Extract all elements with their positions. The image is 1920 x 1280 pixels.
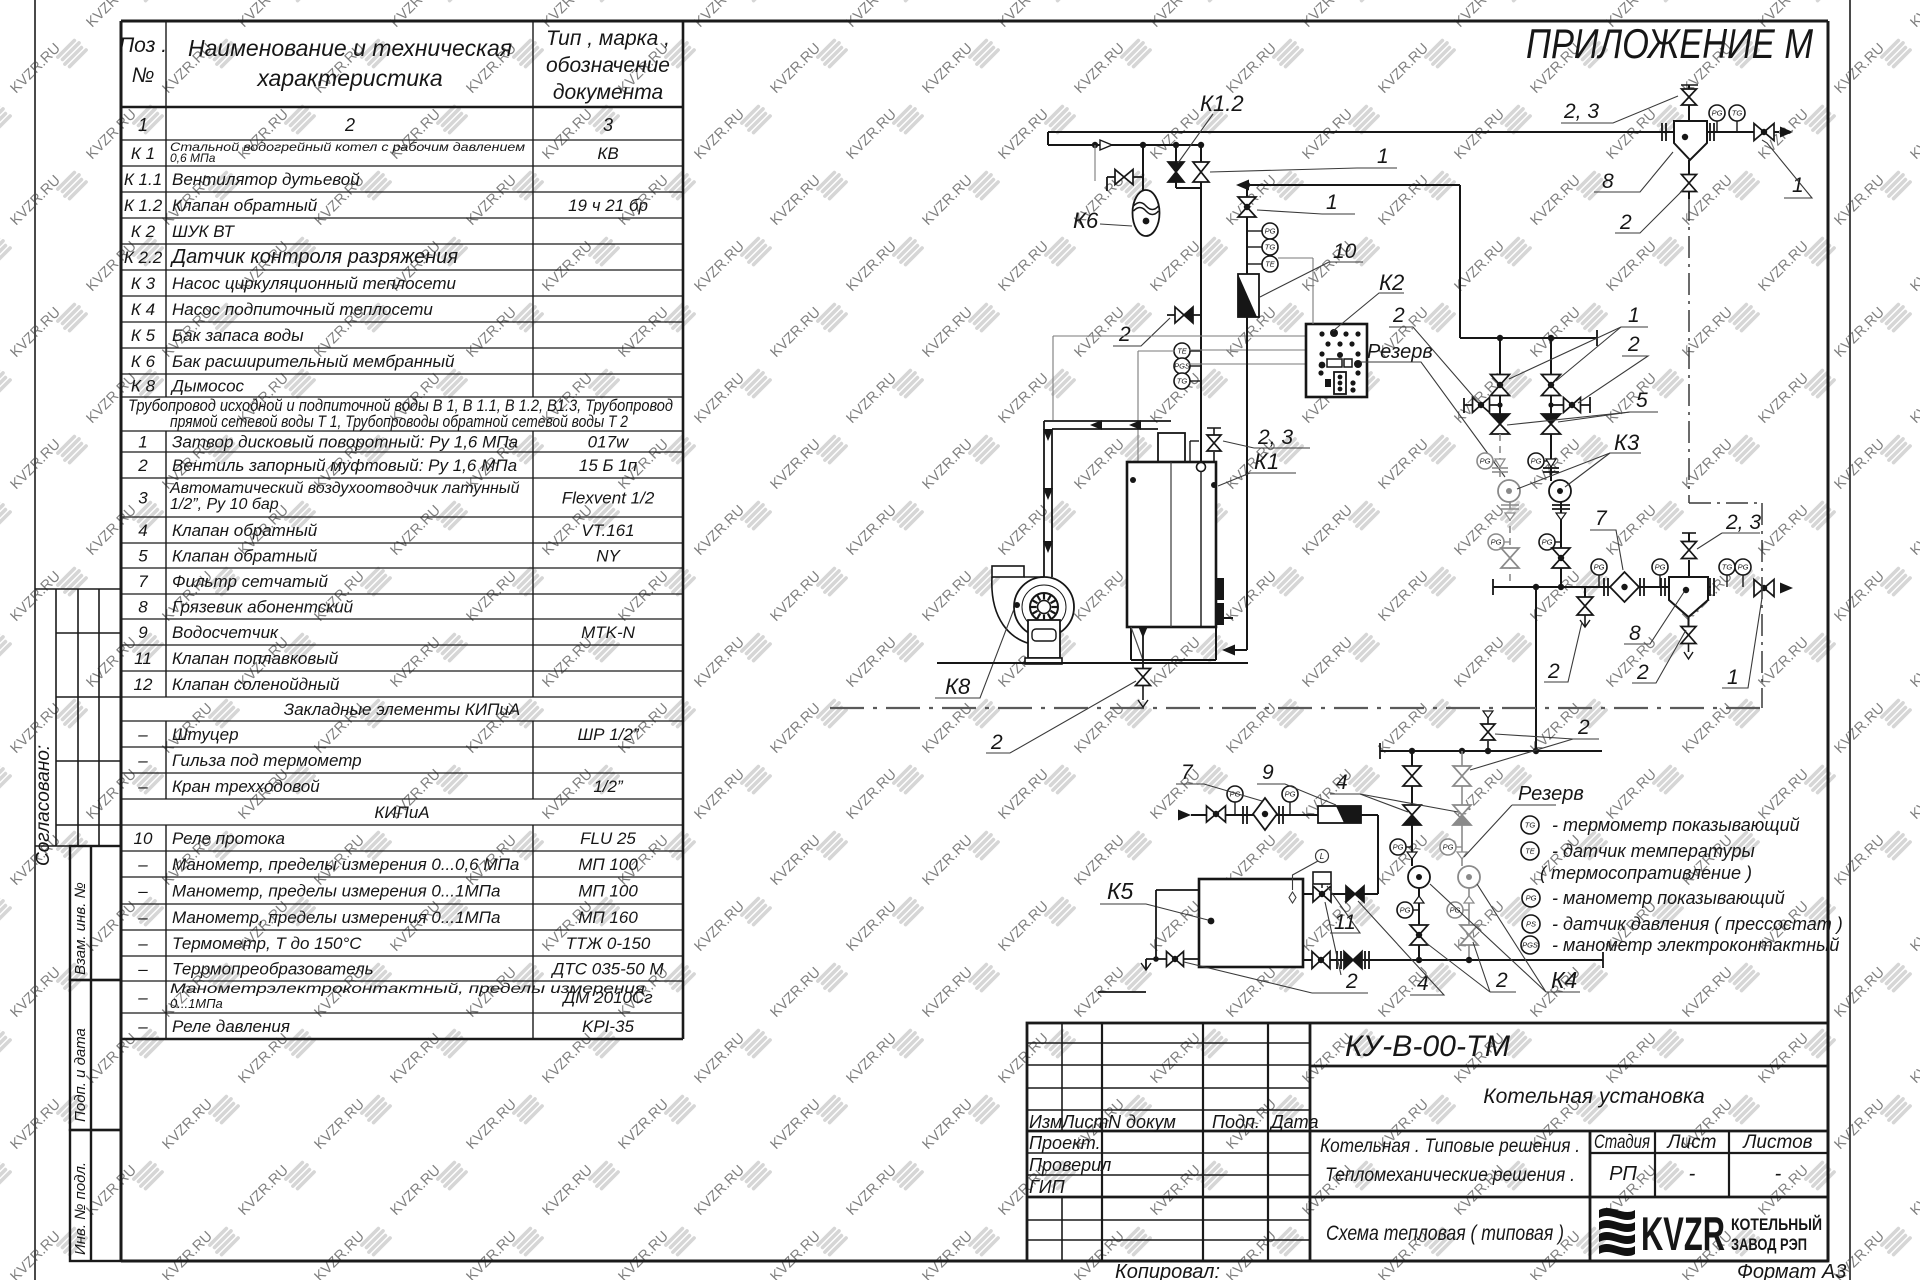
svg-text:1: 1 (1628, 304, 1640, 327)
svg-text:Клапан обратный: Клапан обратный (172, 196, 318, 215)
svg-text:КУ-В-00-ТМ: КУ-В-00-ТМ (1345, 1030, 1510, 1063)
svg-text:12: 12 (134, 675, 153, 694)
svg-text:Лист: Лист (1061, 1112, 1108, 1132)
svg-text:Формат А3: Формат А3 (1737, 1261, 1846, 1280)
svg-text:–: – (137, 725, 148, 744)
svg-text:L: L (1320, 852, 1324, 861)
svg-text:PG: PG (1393, 843, 1404, 852)
svg-text:Проект.: Проект. (1029, 1133, 1101, 1153)
svg-text:ДМ 2010Сг: ДМ 2010Сг (561, 988, 652, 1007)
svg-text:PG: PG (1265, 227, 1276, 236)
svg-text:2: 2 (1118, 323, 1131, 346)
svg-text:–: – (137, 908, 148, 927)
svg-text:К 2.2: К 2.2 (124, 248, 163, 267)
svg-text:PG: PG (1491, 538, 1502, 547)
svg-text:К 1.2: К 1.2 (124, 196, 163, 215)
svg-text:PS: PS (1526, 920, 1536, 929)
svg-text:NY: NY (596, 547, 621, 566)
svg-text:К 1: К 1 (131, 144, 155, 163)
svg-text:2: 2 (1547, 660, 1560, 683)
svg-text:9: 9 (138, 623, 148, 642)
svg-text:PGS: PGS (1174, 362, 1190, 371)
svg-text:Изм: Изм (1029, 1112, 1062, 1132)
svg-text:ШУК ВТ: ШУК ВТ (172, 222, 235, 241)
svg-text:–: – (137, 777, 148, 796)
svg-text:Стадия: Стадия (1594, 1132, 1650, 1153)
svg-text:Резерв: Резерв (1518, 783, 1584, 805)
svg-text:–: – (137, 934, 148, 953)
svg-text:№: № (132, 64, 155, 87)
svg-text:1: 1 (1377, 145, 1389, 168)
svg-text:ТТЖ 0-150: ТТЖ 0-150 (566, 934, 651, 953)
svg-text:Реле давления: Реле давления (172, 1017, 290, 1036)
svg-text:TE: TE (1265, 260, 1276, 269)
svg-text:KVZR: KVZR (1641, 1207, 1725, 1260)
svg-text:TG: TG (1525, 821, 1536, 830)
svg-text:7: 7 (138, 572, 148, 591)
svg-text:Котельная установка: Котельная установка (1483, 1085, 1704, 1108)
svg-text:5: 5 (1636, 389, 1648, 412)
svg-text:4: 4 (138, 521, 147, 540)
svg-text:К8: К8 (945, 674, 971, 699)
svg-text:Дата: Дата (1269, 1112, 1319, 1132)
svg-text:TG: TG (1722, 563, 1733, 572)
svg-text:Проверил: Проверил (1029, 1155, 1111, 1175)
svg-text:2, 3: 2, 3 (1563, 100, 1599, 123)
svg-text:К 3: К 3 (131, 274, 156, 293)
svg-text:Бак расширительный мембранный: Бак расширительный мембранный (172, 352, 455, 371)
svg-text:Стальной водогрейный котел с р: Стальной водогрейный котел с рабочим дав… (170, 140, 525, 154)
svg-text:1/2”, Ру 10 бар: 1/2”, Ру 10 бар (170, 496, 279, 513)
svg-text:2: 2 (1392, 304, 1405, 327)
svg-text:TE: TE (1177, 347, 1188, 356)
svg-text:PG: PG (1480, 457, 1491, 466)
svg-text:–: – (137, 855, 148, 874)
svg-text:Датчик контроля разряжения: Датчик контроля разряжения (170, 246, 458, 268)
svg-text:3: 3 (603, 115, 613, 135)
svg-text:15 Б 1п: 15 Б 1п (579, 456, 638, 475)
svg-text:характеристика: характеристика (256, 65, 442, 91)
svg-text:MTK-N: MTK-N (581, 623, 636, 642)
svg-text:–: – (137, 882, 148, 901)
svg-text:PG: PG (1655, 563, 1666, 572)
svg-text:8: 8 (1629, 622, 1641, 645)
svg-text:КВ: КВ (597, 144, 618, 163)
svg-text:Термометр, Т до 150°С: Термометр, Т до 150°С (172, 934, 362, 953)
svg-text:К 8: К 8 (131, 377, 156, 396)
svg-text:МП 100: МП 100 (578, 882, 638, 901)
svg-text:Flexvent 1/2: Flexvent 1/2 (562, 489, 655, 508)
svg-text:К 2: К 2 (131, 222, 156, 241)
svg-text:2, 3: 2, 3 (1257, 426, 1293, 449)
svg-text:Подп. и дата: Подп. и дата (72, 1028, 89, 1122)
svg-text:2: 2 (1495, 969, 1508, 992)
svg-text:- датчик давления ( прессоста: - датчик давления ( прессостат ) (1552, 914, 1843, 934)
svg-text:Вентиль запорный муфтовый: Ру: Вентиль запорный муфтовый: Ру 1,6 МПа (172, 456, 517, 475)
svg-text:PG: PG (1712, 109, 1723, 118)
svg-text:2: 2 (990, 731, 1003, 754)
svg-text:МП 160: МП 160 (578, 908, 638, 927)
svg-text:PG: PG (1594, 563, 1605, 572)
svg-text:КОТЕЛЬНЫЙ: КОТЕЛЬНЫЙ (1731, 1215, 1822, 1234)
svg-text:PG: PG (1531, 457, 1542, 466)
svg-text:2: 2 (1636, 661, 1649, 684)
svg-text:–: – (137, 960, 148, 979)
svg-text:2: 2 (1619, 211, 1632, 234)
svg-text:Затвор дисковый поворотный: Р: Затвор дисковый поворотный: Ру 1,6 МПа (172, 433, 518, 452)
svg-text:КИПиА: КИПиА (374, 803, 429, 822)
svg-text:К 5: К 5 (131, 326, 156, 345)
svg-text:8: 8 (1602, 170, 1614, 193)
svg-text:- термометр показывающий: - термометр показывающий (1552, 815, 1800, 835)
svg-text:0...1МПа: 0...1МПа (170, 996, 223, 1011)
svg-text:Кран трехходовой: Кран трехходовой (172, 777, 320, 796)
svg-text:1: 1 (1326, 191, 1338, 214)
svg-text:1: 1 (1727, 666, 1739, 689)
svg-text:Поз .: Поз . (119, 34, 167, 57)
svg-text:Насос подпиточный теплосети: Насос подпиточный теплосети (172, 300, 433, 319)
svg-text:Водосчетчик: Водосчетчик (172, 623, 279, 642)
svg-text:Клапан соленойдный: Клапан соленойдный (172, 675, 340, 694)
svg-text:К6: К6 (1073, 208, 1099, 233)
svg-text:Копировал:: Копировал: (1115, 1261, 1220, 1280)
svg-text:–: – (137, 988, 148, 1007)
svg-text:1/2”: 1/2” (593, 777, 624, 796)
svg-text:KPI-35: KPI-35 (582, 1017, 635, 1036)
svg-text:К3: К3 (1614, 430, 1640, 455)
svg-text:10: 10 (134, 829, 153, 848)
svg-text:TE: TE (1525, 847, 1536, 856)
svg-text:TG: TG (1177, 377, 1188, 386)
svg-text:8: 8 (138, 598, 148, 617)
svg-text:ДТС 035-50 М: ДТС 035-50 М (550, 960, 664, 979)
svg-text:5: 5 (138, 547, 148, 566)
svg-text:Штуцер: Штуцер (172, 725, 239, 744)
svg-text:Котельная . Типовые решения .: Котельная . Типовые решения . (1320, 1136, 1580, 1157)
svg-text:Инв. № подл.: Инв. № подл. (72, 1162, 89, 1255)
svg-text:4: 4 (1417, 972, 1429, 995)
svg-text:Реле протока: Реле протока (172, 829, 285, 848)
svg-text:( термосопративление ): ( термосопративление ) (1540, 863, 1752, 883)
svg-text:Резерв: Резерв (1367, 341, 1433, 363)
svg-text:PG: PG (1738, 563, 1749, 572)
svg-text:Автоматический воздухоотводчи: Автоматический воздухоотводчик латунный (169, 480, 520, 497)
svg-text:PG: PG (1400, 906, 1411, 915)
svg-text:- датчик температуры: - датчик температуры (1552, 841, 1755, 861)
svg-text:Гильза под термометр: Гильза под термометр (172, 751, 362, 770)
svg-text:Подп.: Подп. (1212, 1112, 1260, 1132)
svg-text:Манометр, пределы измерения 0: Манометр, пределы измерения 0...1МПа (172, 908, 500, 927)
svg-text:4: 4 (1336, 771, 1348, 794)
svg-text:PG: PG (1542, 538, 1553, 547)
svg-text:ЗАВОД РЭП: ЗАВОД РЭП (1731, 1235, 1807, 1254)
svg-text:Взам. инв. №: Взам. инв. № (72, 882, 89, 975)
svg-text:Вентилятор дутьевой: Вентилятор дутьевой (172, 170, 360, 189)
svg-text:PG: PG (1443, 843, 1454, 852)
svg-text:- манометр показывающий: - манометр показывающий (1552, 888, 1785, 908)
svg-text:К 4: К 4 (131, 300, 155, 319)
svg-text:10: 10 (1333, 240, 1357, 263)
svg-text:Наименование и техническая: Наименование и техническая (188, 35, 512, 61)
svg-text:К 1.1: К 1.1 (124, 170, 162, 189)
svg-text:PGS: PGS (1522, 941, 1538, 950)
svg-text:ГИП: ГИП (1029, 1177, 1066, 1197)
svg-text:прямой сетевой воды Т 1, Труб: прямой сетевой воды Т 1, Трубопроводы об… (170, 413, 628, 431)
svg-text:Насос циркуляционный теплосети: Насос циркуляционный теплосети (172, 274, 457, 293)
svg-text:Клапан поплавковый: Клапан поплавковый (172, 649, 339, 668)
svg-text:К 6: К 6 (131, 352, 156, 371)
svg-text:1: 1 (138, 115, 148, 135)
svg-text:Согласовано:: Согласовано: (33, 745, 54, 866)
svg-text:Клапан обратный: Клапан обратный (172, 521, 318, 540)
svg-text:11: 11 (134, 649, 152, 668)
svg-text:К1: К1 (1254, 449, 1279, 474)
svg-text:обозначение: обозначение (546, 54, 670, 77)
svg-text:3: 3 (138, 489, 148, 508)
svg-text:ШР 1/2”: ШР 1/2” (577, 725, 639, 744)
svg-text:1: 1 (138, 433, 147, 452)
svg-text:МП 100: МП 100 (578, 855, 638, 874)
svg-text:К4: К4 (1551, 967, 1577, 993)
svg-text:Лист: Лист (1666, 1132, 1717, 1153)
svg-text:–: – (137, 751, 148, 770)
svg-text:РП: РП (1609, 1163, 1637, 1185)
svg-text:Грязевик абонентский: Грязевик абонентский (172, 598, 354, 617)
svg-text:Схема тепловая ( типовая ): Схема тепловая ( типовая ) (1326, 1222, 1564, 1245)
svg-text:FLU 25: FLU 25 (580, 829, 636, 848)
svg-text:TG: TG (1265, 243, 1276, 252)
svg-text:Клапан обратный: Клапан обратный (172, 547, 318, 566)
svg-text:PG: PG (1526, 894, 1537, 903)
svg-text:Террмопреобразователь: Террмопреобразователь (172, 960, 374, 979)
svg-text:Манометр, пределы измерения 0: Манометр, пределы измерения 0...1МПа (172, 882, 500, 901)
svg-text:2: 2 (344, 115, 355, 135)
svg-text:2, 3: 2, 3 (1725, 511, 1761, 534)
svg-text:0,6 МПа: 0,6 МПа (170, 151, 216, 165)
svg-text:017w: 017w (588, 433, 630, 452)
svg-text:2: 2 (1627, 333, 1640, 356)
svg-text:К1.2: К1.2 (1200, 91, 1244, 116)
svg-text:9: 9 (1262, 761, 1274, 784)
svg-text:PG: PG (1285, 790, 1296, 799)
svg-text:TG: TG (1732, 109, 1743, 118)
svg-text:Манометр, пределы измерения 0: Манометр, пределы измерения 0...0,6 МПа (172, 855, 519, 874)
svg-text:К5: К5 (1107, 878, 1134, 904)
svg-text:N докум: N докум (1108, 1112, 1176, 1132)
svg-text:–: – (137, 1017, 148, 1036)
svg-text:-: - (1689, 1163, 1696, 1185)
svg-text:документа: документа (553, 81, 663, 104)
svg-text:Тип , марка ,: Тип , марка , (546, 27, 670, 50)
svg-text:-: - (1775, 1163, 1782, 1185)
svg-text:2: 2 (1345, 970, 1358, 993)
svg-text:VT.161: VT.161 (581, 521, 634, 540)
svg-text:2: 2 (1577, 716, 1590, 739)
svg-text:Дымосос: Дымосос (170, 377, 245, 396)
svg-text:Закладные элементы КИПиА: Закладные элементы КИПиА (284, 700, 520, 719)
svg-text:К2: К2 (1379, 270, 1404, 295)
svg-text:2: 2 (137, 456, 148, 475)
svg-text:Бак запаса воды: Бак запаса воды (172, 326, 304, 345)
svg-text:- манометр электроконтактный: - манометр электроконтактный (1552, 935, 1839, 955)
svg-text:Тепломеханические решения .: Тепломеханические решения . (1325, 1165, 1575, 1186)
svg-text:Фильтр сетчатый: Фильтр сетчатый (172, 572, 328, 591)
svg-text:Листов: Листов (1741, 1132, 1812, 1153)
svg-text:ПРИЛОЖЕНИЕ М: ПРИЛОЖЕНИЕ М (1526, 20, 1813, 67)
svg-text:7: 7 (1181, 761, 1194, 784)
svg-text:7: 7 (1595, 507, 1608, 530)
svg-text:19 ч 21 бр: 19 ч 21 бр (568, 196, 648, 215)
